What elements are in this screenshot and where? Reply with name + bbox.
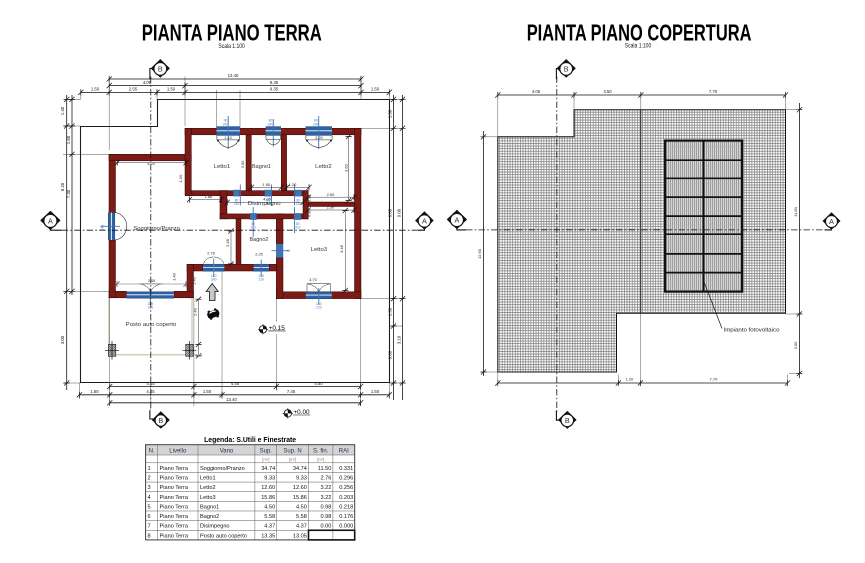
svg-text:34.74: 34.74: [293, 466, 307, 472]
svg-text:210: 210: [251, 226, 257, 230]
svg-text:6: 6: [148, 514, 151, 520]
svg-text:3.10: 3.10: [396, 335, 401, 344]
svg-text:0.00: 0.00: [321, 524, 332, 530]
svg-text:Piano Terra: Piano Terra: [160, 524, 189, 530]
svg-text:5.58: 5.58: [264, 514, 275, 520]
svg-text:Bagno2: Bagno2: [200, 514, 219, 520]
svg-text:7: 7: [148, 524, 151, 530]
svg-text:4.48: 4.48: [339, 244, 344, 253]
svg-text:1.60: 1.60: [66, 135, 71, 144]
svg-text:13.40: 13.40: [226, 397, 237, 402]
svg-text:0.256: 0.256: [339, 485, 353, 491]
svg-text:5.58: 5.58: [296, 514, 307, 520]
svg-text:1.50: 1.50: [387, 109, 392, 118]
svg-text:3.00: 3.00: [240, 160, 245, 169]
svg-text:1.50: 1.50: [90, 389, 99, 394]
svg-text:13.40: 13.40: [228, 73, 239, 78]
svg-text:1.50: 1.50: [371, 389, 380, 394]
svg-text:N.: N.: [149, 448, 155, 454]
svg-text:11.80: 11.80: [793, 206, 798, 216]
svg-text:Soggiorno/Pranzo: Soggiorno/Pranzo: [133, 226, 180, 232]
svg-text:4.45: 4.45: [231, 381, 240, 386]
svg-text:4.50: 4.50: [264, 504, 275, 510]
svg-text:3.00: 3.00: [60, 335, 65, 344]
svg-text:210: 210: [295, 226, 301, 230]
svg-text:A: A: [829, 217, 834, 226]
svg-text:A: A: [422, 217, 427, 226]
svg-text:2.76: 2.76: [207, 252, 214, 256]
svg-text:1: 1: [148, 466, 151, 472]
svg-text:2.20: 2.20: [315, 136, 322, 140]
svg-text:Impianto fotovoltaico: Impianto fotovoltaico: [724, 327, 781, 333]
svg-text:3.00: 3.00: [793, 341, 798, 350]
svg-text:8: 8: [148, 533, 151, 539]
svg-text:7.70: 7.70: [710, 377, 719, 382]
svg-text:Piano Terra: Piano Terra: [160, 476, 189, 482]
svg-text:A: A: [455, 216, 460, 225]
svg-text:15.86: 15.86: [261, 495, 275, 501]
svg-text:3.20: 3.20: [147, 161, 156, 166]
svg-text:Scala 1:100: Scala 1:100: [218, 44, 245, 50]
svg-text:9.00: 9.00: [396, 208, 401, 217]
svg-text:9.00: 9.00: [387, 208, 392, 217]
svg-text:13.35: 13.35: [261, 533, 275, 539]
svg-text:210: 210: [296, 202, 302, 206]
svg-text:PIANTA PIANO COPERTURA: PIANTA PIANO COPERTURA: [527, 19, 752, 45]
svg-text:Bagno2: Bagno2: [250, 237, 269, 243]
svg-text:Piano Terra: Piano Terra: [160, 485, 189, 491]
svg-text:3.22: 3.22: [321, 495, 332, 501]
svg-text:1.50: 1.50: [203, 389, 212, 394]
svg-text:5: 5: [148, 504, 151, 510]
svg-text:2.46: 2.46: [225, 238, 230, 247]
svg-text:7.45: 7.45: [287, 389, 296, 394]
svg-text:0.98: 0.98: [321, 504, 332, 510]
svg-text:0.90: 0.90: [307, 195, 311, 202]
svg-text:0.000: 0.000: [339, 524, 353, 530]
svg-text:1.40: 1.40: [192, 276, 197, 285]
svg-text:A: A: [48, 217, 53, 226]
svg-text:Letto2: Letto2: [200, 485, 216, 491]
svg-text:[m²]: [m²]: [262, 457, 269, 462]
svg-text:7.70: 7.70: [709, 89, 718, 94]
svg-text:Sup. N: Sup. N: [283, 448, 301, 454]
svg-text:9.35: 9.35: [270, 87, 279, 92]
svg-text:3: 3: [148, 485, 151, 491]
svg-text:0.98: 0.98: [321, 514, 332, 520]
svg-text:Piano Terra: Piano Terra: [160, 495, 189, 501]
svg-text:Livello: Livello: [169, 448, 187, 454]
svg-text:0.296: 0.296: [339, 476, 353, 482]
svg-text:9.35: 9.35: [270, 80, 279, 85]
svg-text:12.60: 12.60: [477, 248, 482, 259]
svg-text:2.25: 2.25: [255, 253, 262, 257]
svg-text:8.20: 8.20: [60, 182, 65, 191]
svg-text:13.05: 13.05: [293, 533, 307, 539]
svg-text:Scala 1:100: Scala 1:100: [625, 43, 652, 49]
svg-text:1.40: 1.40: [172, 272, 177, 281]
svg-text:0.176: 0.176: [339, 514, 353, 520]
svg-text:240: 240: [313, 122, 319, 126]
svg-text:12.60: 12.60: [261, 485, 275, 491]
svg-text:1.88: 1.88: [205, 194, 214, 199]
svg-text:0.203: 0.203: [339, 495, 353, 501]
svg-text:9.33: 9.33: [296, 476, 307, 482]
svg-text:B: B: [158, 65, 163, 74]
svg-text:7.30: 7.30: [66, 189, 71, 198]
svg-text:Bagno1: Bagno1: [200, 504, 219, 510]
svg-text:1.50: 1.50: [262, 182, 271, 187]
svg-text:Piano Terra: Piano Terra: [160, 514, 189, 520]
svg-text:15.86: 15.86: [293, 495, 307, 501]
svg-text:2.76: 2.76: [321, 476, 332, 482]
svg-text:34.74: 34.74: [261, 466, 275, 472]
svg-text:240: 240: [268, 122, 274, 126]
svg-text:1.50: 1.50: [371, 87, 380, 92]
svg-text:1.20: 1.20: [178, 174, 183, 183]
svg-text:3.50: 3.50: [603, 89, 612, 94]
svg-text:9.33: 9.33: [264, 476, 275, 482]
svg-text:12.60: 12.60: [293, 485, 307, 491]
svg-text:105: 105: [147, 306, 153, 310]
svg-text:4.05: 4.05: [532, 89, 541, 94]
svg-text:4.50: 4.50: [314, 381, 323, 386]
svg-text:2.50: 2.50: [327, 192, 336, 197]
svg-text:240: 240: [211, 278, 217, 282]
svg-text:4.37: 4.37: [296, 524, 307, 530]
svg-text:2.40: 2.40: [193, 307, 198, 316]
svg-text:B: B: [565, 416, 570, 425]
svg-text:Letto3: Letto3: [311, 247, 328, 253]
svg-text:4.37: 4.37: [264, 524, 275, 530]
svg-text:80: 80: [287, 249, 291, 253]
svg-text:Posto auto coperto: Posto auto coperto: [200, 533, 247, 539]
svg-text:Letto2: Letto2: [315, 164, 332, 170]
svg-text:Posto auto coperto: Posto auto coperto: [126, 322, 177, 328]
svg-text:1.50: 1.50: [387, 307, 392, 316]
svg-text:2.50: 2.50: [327, 205, 336, 210]
svg-text:11.50: 11.50: [318, 466, 332, 472]
svg-text:1.10: 1.10: [224, 136, 231, 140]
svg-text:0.90: 0.90: [307, 210, 311, 217]
svg-text:B: B: [158, 416, 163, 425]
svg-text:Soggiorno/Pranzo: Soggiorno/Pranzo: [200, 466, 245, 472]
svg-text:1.50: 1.50: [167, 87, 176, 92]
svg-text:0.218: 0.218: [339, 504, 353, 510]
svg-text:4: 4: [148, 495, 151, 501]
svg-text:2.55: 2.55: [129, 87, 138, 92]
svg-text:S. fin.: S. fin.: [313, 448, 329, 454]
svg-text:240: 240: [223, 122, 229, 126]
svg-text:120: 120: [258, 278, 264, 282]
svg-text:3.70: 3.70: [309, 278, 316, 282]
svg-text:Piano Terra: Piano Terra: [160, 504, 189, 510]
svg-text:4.50: 4.50: [296, 504, 307, 510]
svg-text:210: 210: [234, 202, 240, 206]
svg-text:2: 2: [148, 476, 151, 482]
svg-text:0.331: 0.331: [339, 466, 353, 472]
svg-text:PIANTA PIANO TERRA: PIANTA PIANO TERRA: [142, 19, 322, 45]
svg-text:3.00: 3.00: [387, 350, 392, 359]
svg-text:3.22: 3.22: [321, 485, 332, 491]
svg-text:4.05: 4.05: [263, 197, 272, 202]
svg-text:3.60: 3.60: [344, 163, 349, 172]
svg-text:[m²]: [m²]: [317, 457, 324, 462]
svg-text:1.50: 1.50: [91, 87, 100, 92]
svg-text:1.40: 1.40: [60, 106, 65, 115]
svg-text:Legenda: S.Utili e Finestrate: Legenda: S.Utili e Finestrate: [204, 435, 296, 444]
svg-text:1.20: 1.20: [289, 182, 298, 187]
svg-text:Letto1: Letto1: [200, 476, 216, 482]
svg-text:Piano Terra: Piano Terra: [160, 466, 189, 472]
svg-text:Letto1: Letto1: [214, 164, 231, 170]
svg-text:B: B: [564, 65, 569, 74]
svg-text:Piano Terra: Piano Terra: [160, 533, 189, 539]
svg-text:Sup.: Sup.: [260, 448, 273, 454]
svg-text:120: 120: [316, 306, 322, 310]
svg-text:Bagno1: Bagno1: [252, 164, 271, 170]
svg-text:Disimpegno: Disimpegno: [200, 524, 230, 530]
svg-text:1.20: 1.20: [626, 377, 635, 382]
svg-text:[m²]: [m²]: [289, 457, 296, 462]
svg-text:Vano: Vano: [220, 448, 234, 454]
svg-text:Letto3: Letto3: [200, 495, 216, 501]
svg-text:3.65: 3.65: [148, 279, 155, 283]
svg-text:148: 148: [101, 225, 105, 231]
svg-text:RAI: RAI: [339, 448, 349, 454]
